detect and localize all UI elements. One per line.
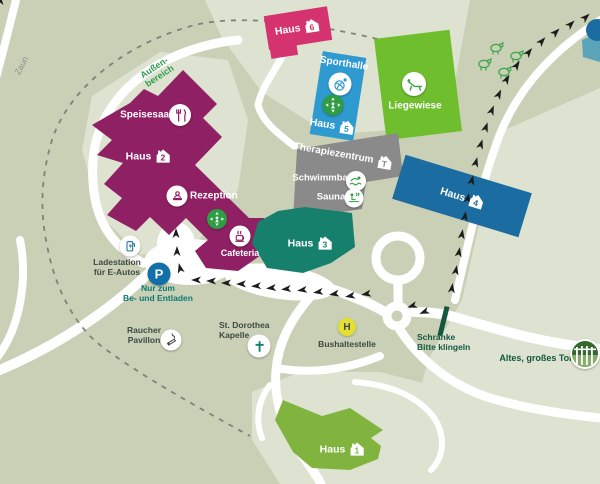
haus-1-name: Haus (320, 443, 346, 455)
ev-charging-icon (120, 236, 141, 257)
bushaltestelle-text: Bushaltestelle (318, 339, 376, 349)
bus-stop-letter: H (343, 322, 350, 333)
schranke-label: Schranke Bitte klingeln (417, 333, 470, 353)
cafeteria-text: Cafeteria (221, 248, 260, 258)
haus-2-name: Haus (126, 150, 152, 162)
cafeteria-label: Cafeteria (221, 248, 260, 258)
house-icon: 5 (338, 119, 355, 136)
tor-label: Altes, großes Tor (499, 353, 572, 363)
tor-text: Altes, großes Tor (499, 353, 572, 363)
house-icon: 6 (303, 17, 320, 34)
haus-6-number: 6 (304, 20, 321, 34)
speisesaal-label: Speisesaal (120, 109, 172, 121)
raucher-pavillon-label: Raucher Pavillon (127, 326, 161, 346)
bushaltestelle-label: Bushaltestelle (318, 340, 376, 350)
house-icon: 2 (155, 149, 170, 164)
sauna-label: Sauna (317, 193, 346, 204)
coffee-cup-icon (230, 226, 251, 247)
parking-badge: P (148, 263, 171, 286)
cross-icon (248, 335, 271, 358)
haus-5-name: Haus (309, 116, 336, 132)
ladestation-label: Ladestation für E-Autos (93, 258, 141, 278)
roundabout (387, 306, 407, 326)
reception-desk-icon (167, 186, 188, 207)
haus-5-number: 5 (338, 122, 355, 136)
bus-stop-badge: H (338, 318, 356, 336)
haus-1-number: 1 (349, 445, 364, 457)
haus-3-number: 3 (317, 239, 332, 251)
cigarette-icon (161, 330, 182, 351)
parking-letter: P (155, 267, 164, 282)
pond (582, 19, 600, 62)
speisesaal-text: Speisesaal (120, 109, 172, 120)
haus-2-number: 2 (155, 152, 170, 164)
walking-route-arrows (0, 0, 4, 5)
liegewiese-label: Liegewiese (388, 100, 441, 112)
sauna-text: Sauna (317, 192, 346, 203)
turning-loop (376, 236, 420, 280)
raucher-line2: Pavillon (127, 336, 161, 346)
therapiezentrum-letter: T (376, 157, 393, 171)
parking-note-line2: Be- und Entladen (123, 294, 193, 304)
rezeption-label: Rezeption (190, 190, 238, 202)
schwimmbad-label: Schwimmbad (292, 174, 353, 185)
assembly-point-icon (207, 209, 227, 229)
gate-photo (570, 339, 600, 369)
sauna-icon (345, 189, 364, 208)
campus-map: Zaun Außen- bereich Speisesaal Haus 2 Re… (0, 0, 600, 484)
schwimmbad-text: Schwimmbad (292, 173, 353, 184)
haus-2-label: Haus 2 (126, 149, 171, 164)
haus-3-name: Haus (288, 237, 314, 249)
parking-note: Nur zum Be- und Entladen (123, 284, 193, 304)
sheep-icons (479, 43, 524, 78)
haus-3-label: Haus 3 (288, 236, 333, 251)
assembly-point-icon (323, 95, 344, 116)
ladestation-line2: für E-Autos (93, 268, 141, 278)
haus-1-label: Haus 1 (320, 442, 365, 457)
lounger-icon (402, 72, 426, 96)
house-icon: 1 (349, 442, 364, 457)
schranke-line2: Bitte klingeln (417, 343, 470, 353)
house-icon: T (376, 154, 393, 171)
house-icon: 3 (317, 236, 332, 251)
cutlery-icon (169, 104, 191, 126)
liegewiese-text: Liegewiese (388, 100, 441, 111)
sports-ball-icon (329, 73, 352, 96)
rezeption-text: Rezeption (190, 190, 238, 201)
haus-6-name: Haus (274, 22, 301, 38)
